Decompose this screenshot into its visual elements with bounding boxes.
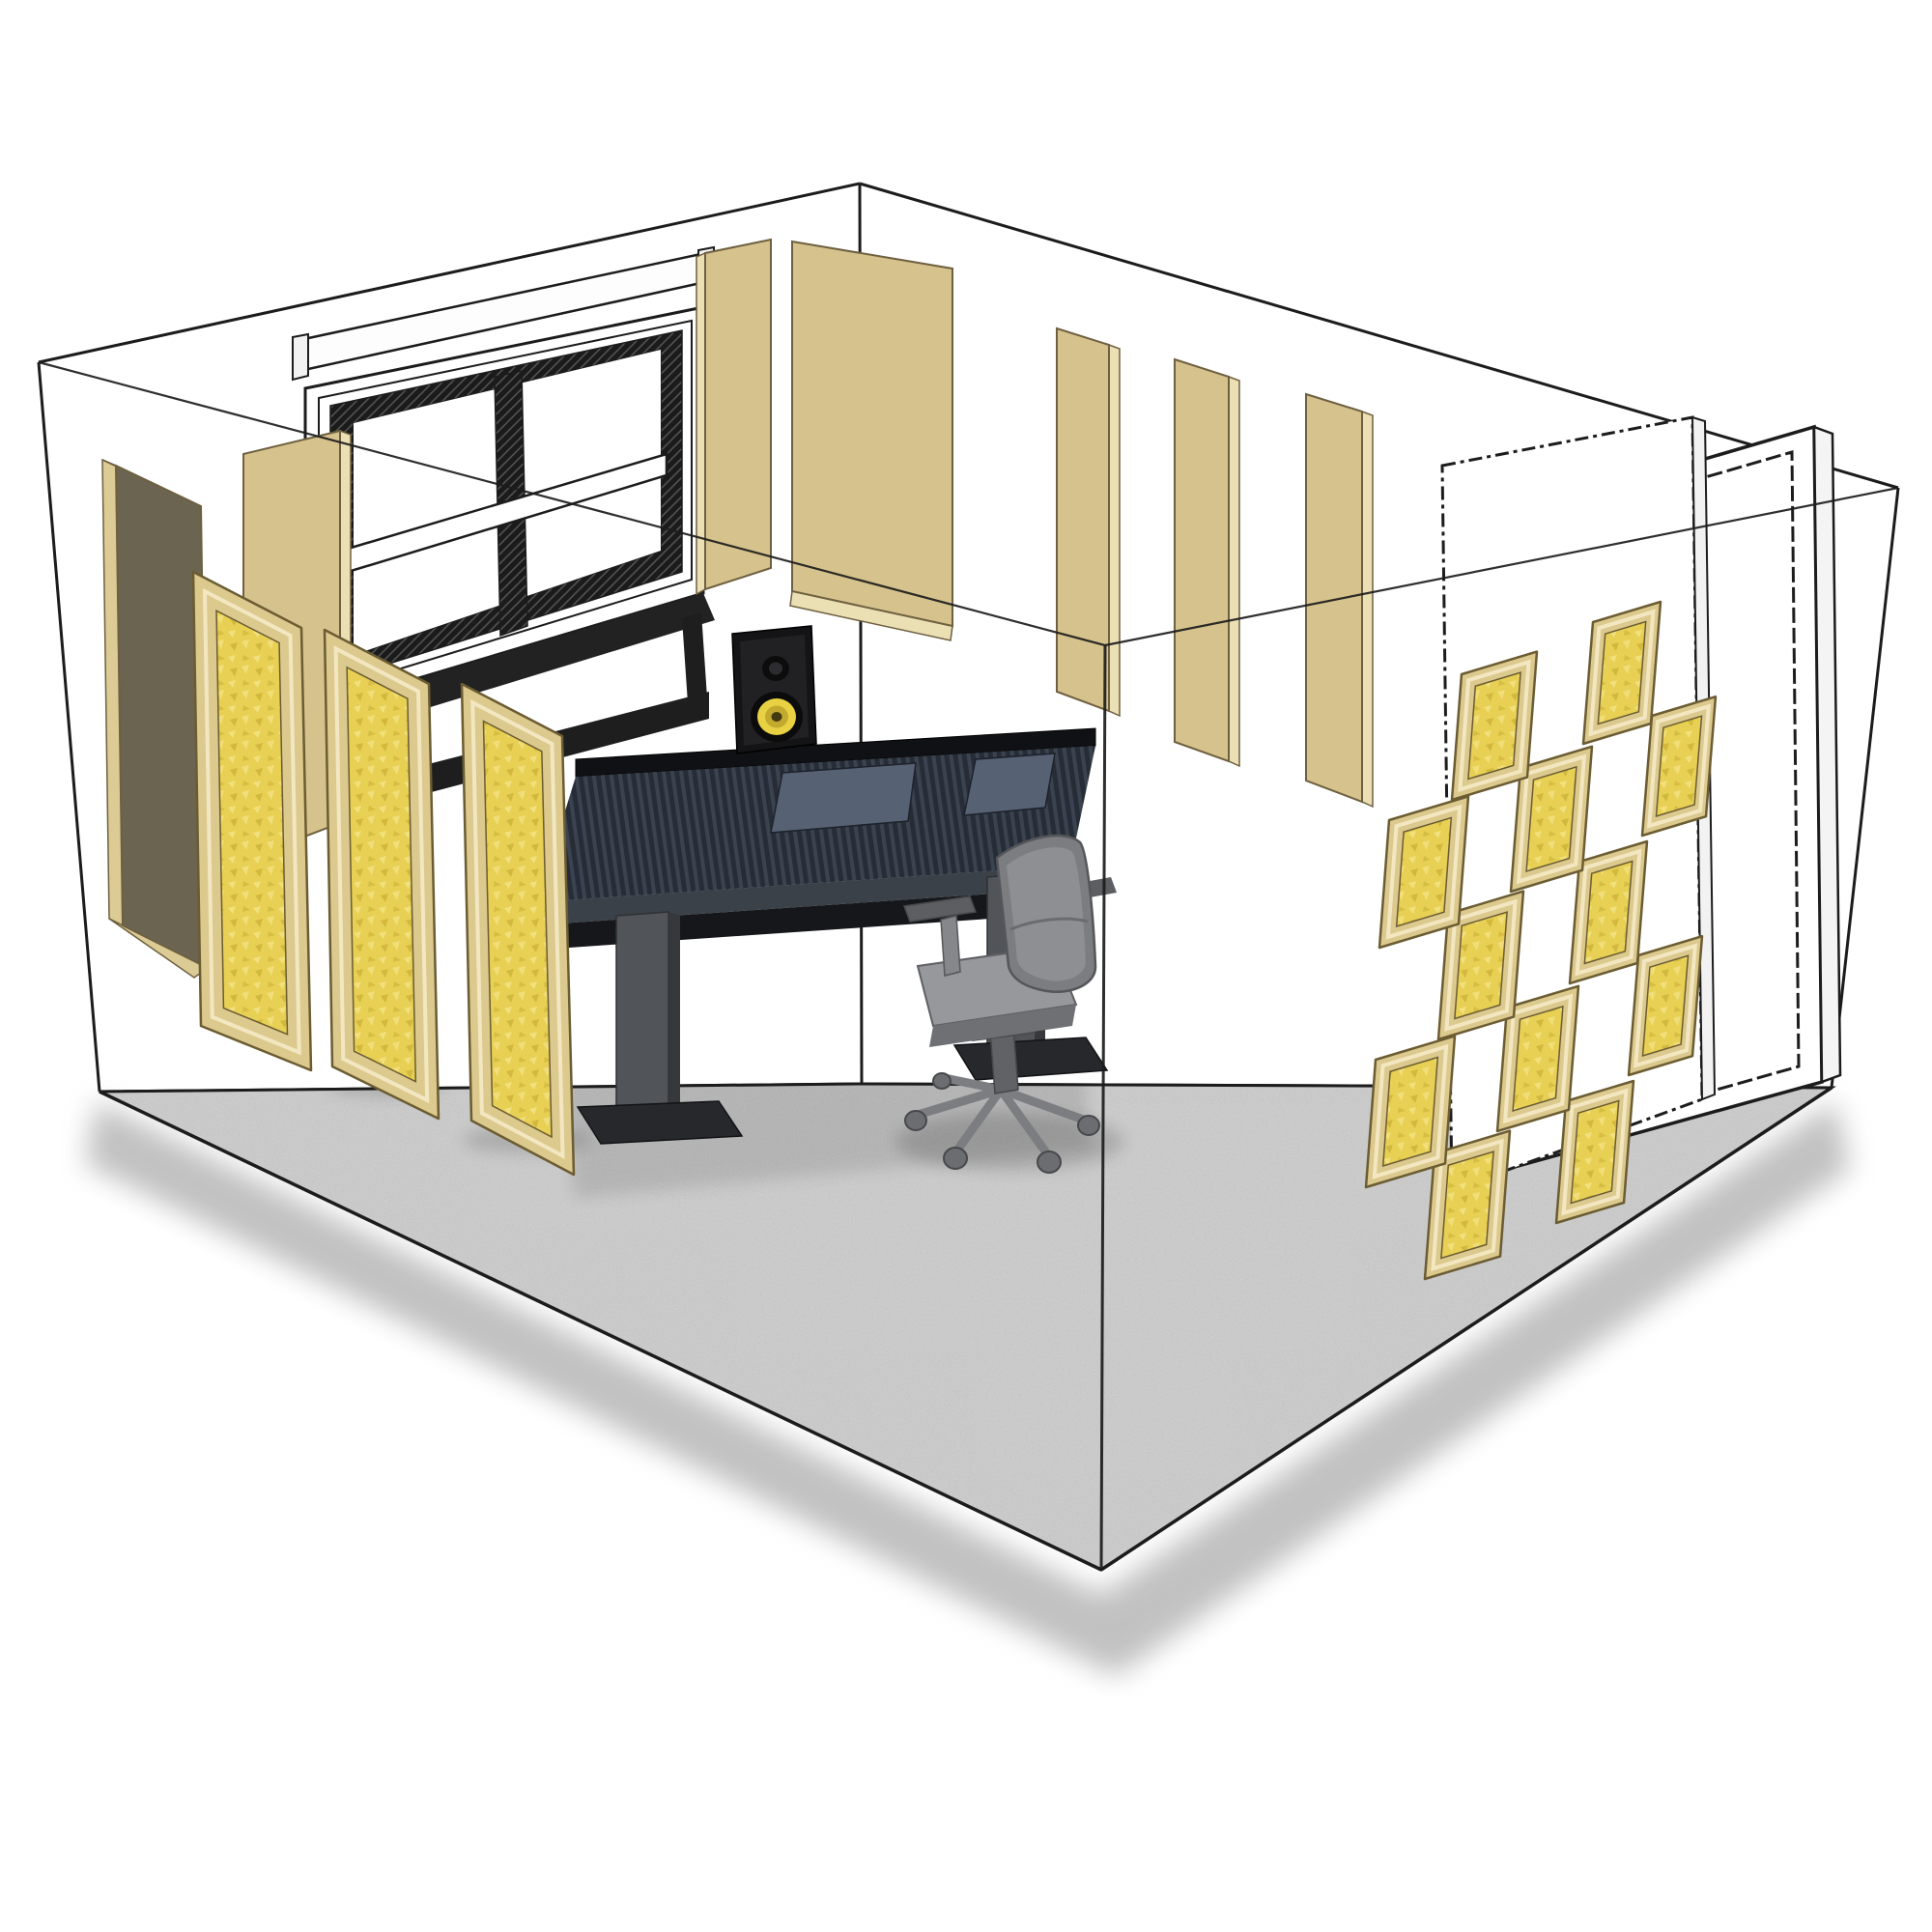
framed-absorber-panel-1 (193, 572, 311, 1070)
speaker-tweeter-dome (769, 663, 782, 675)
checkerboard-panel-r3c4 (1629, 936, 1702, 1075)
console-center-section (771, 763, 916, 833)
console-right-section (964, 753, 1055, 815)
dark-corner-panel (102, 460, 208, 978)
checkerboard-panel-r1c4 (1642, 696, 1716, 836)
right-wall-panel-3 (1306, 394, 1373, 807)
tan-panel-right-of-window (696, 240, 771, 594)
studio-monitor-speaker (732, 626, 816, 753)
checkerboard-panel-r3c0 (1366, 1036, 1455, 1187)
checkerboard-panel-r1c0 (1379, 796, 1468, 948)
console-left-leg (616, 912, 668, 1113)
chair-backrest-mesh (1007, 847, 1086, 980)
framed-absorber-panel-2 (325, 630, 439, 1119)
console-left-leg-side (668, 912, 680, 1109)
right-wall-panel-1 (1057, 328, 1120, 716)
console-left-foot (578, 1101, 742, 1144)
framed-absorber-panel-3 (462, 684, 574, 1175)
chair-left-armrest-post (941, 916, 960, 976)
room-scene-svg (0, 0, 1932, 1932)
acoustic-room-illustration (0, 0, 1932, 1932)
right-wall-panel-2 (1175, 359, 1239, 766)
checkerboard-panel-r0c3 (1583, 602, 1661, 744)
checkerboard-panel-r0c1 (1452, 652, 1537, 800)
speaker-dust-cap (772, 712, 782, 722)
tan-corner-hanging-panel (790, 241, 952, 640)
window-roller-shade-endcap-left (293, 334, 308, 380)
